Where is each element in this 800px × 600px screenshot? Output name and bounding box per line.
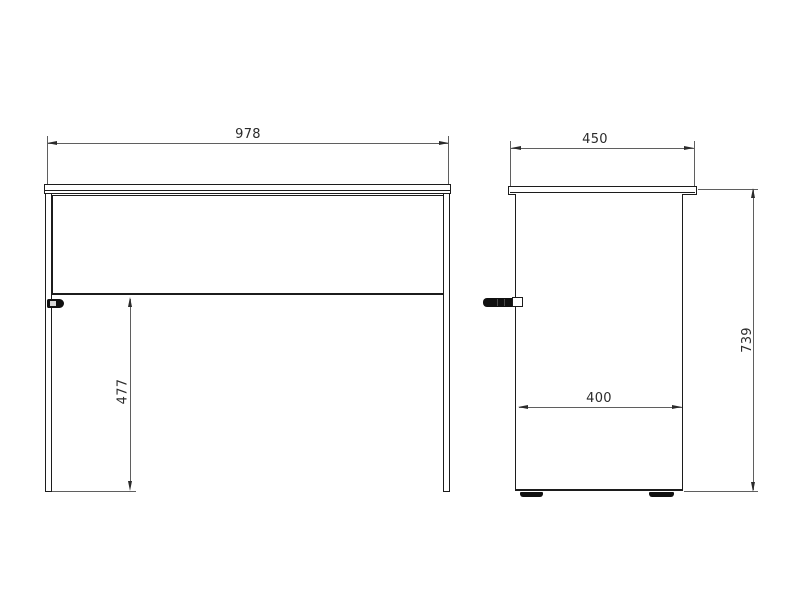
- panel-depth-dimension-label: 400: [569, 392, 629, 406]
- arrowhead-icon: [672, 405, 682, 409]
- front-back-panel: [52, 195, 444, 295]
- arrowhead-icon: [518, 405, 528, 409]
- arrowhead-icon: [751, 482, 755, 492]
- arrowhead-icon: [511, 146, 521, 150]
- front-right-leg: [443, 193, 450, 492]
- clearance-dimension-label: 477: [117, 362, 132, 422]
- arrowhead-icon: [128, 481, 132, 491]
- connector-screw-icon: [483, 298, 514, 307]
- front-desktop-edge-line: [45, 190, 450, 191]
- clearance-ext-line-bottom: [52, 491, 136, 492]
- side-desktop-edge-line: [510, 192, 695, 193]
- side-view: 450 400 739: [470, 0, 800, 600]
- arrowhead-icon: [751, 188, 755, 198]
- width-dimension-line: [47, 143, 449, 144]
- cam-lock-insert: [50, 301, 56, 306]
- arrowhead-icon: [128, 297, 132, 307]
- arrowhead-icon: [684, 146, 694, 150]
- height-ext-line-top: [698, 189, 758, 190]
- front-view: 978 477: [0, 0, 470, 600]
- panel-depth-dimension-line: [519, 407, 682, 408]
- front-desktop-top: [44, 184, 451, 194]
- side-panel: [515, 194, 683, 491]
- arrowhead-icon: [47, 141, 57, 145]
- connector-plate: [512, 297, 523, 308]
- screw-thread-line: [497, 299, 498, 306]
- width-dimension-label: 978: [218, 128, 278, 142]
- depth-dimension-label: 450: [565, 133, 625, 147]
- depth-dimension-line: [511, 148, 695, 149]
- height-dimension-label: 739: [741, 310, 755, 370]
- foot-glide-right: [649, 492, 674, 497]
- front-left-leg: [45, 193, 52, 492]
- height-ext-line-bottom: [684, 491, 758, 492]
- technical-drawing: 978 477 450: [0, 0, 800, 600]
- screw-thread-line: [504, 299, 505, 306]
- foot-glide-left: [520, 492, 543, 497]
- arrowhead-icon: [439, 141, 449, 145]
